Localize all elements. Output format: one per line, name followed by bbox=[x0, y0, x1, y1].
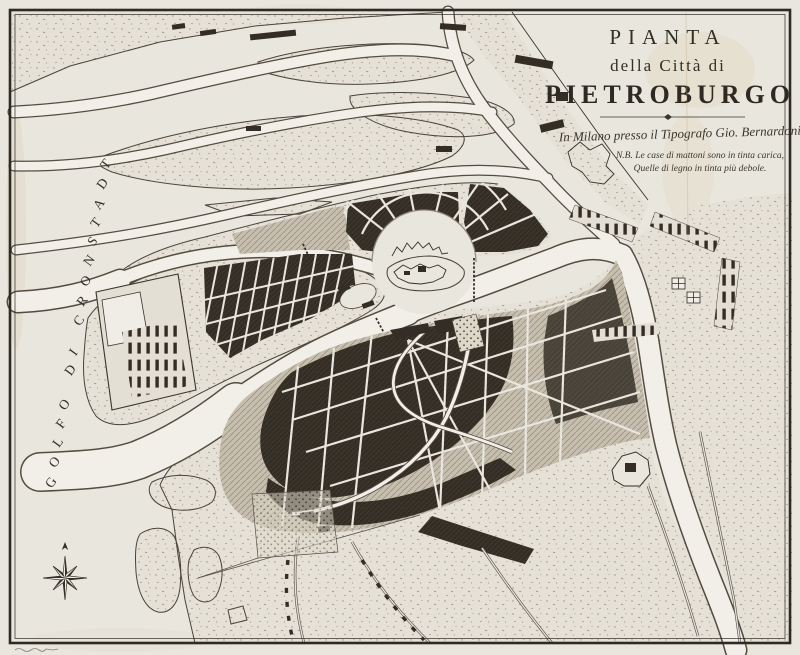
legend-note-line2: Quelle di legno in tinta più debole. bbox=[634, 164, 767, 174]
map-canvas: PIANTA della Città di PIETROBURGO In Mil… bbox=[0, 0, 800, 655]
galley-harbor bbox=[96, 274, 196, 410]
map-title-line3: PIETROBURGO bbox=[545, 80, 795, 109]
map-title-line1: PIANTA bbox=[609, 25, 726, 49]
map-title-line2: della Città di bbox=[610, 56, 726, 75]
legend-note-line1: N.B. Le case di mattoni sono in tinta ca… bbox=[615, 151, 784, 161]
ekateringof-park bbox=[252, 490, 338, 558]
engraved-map-page: PIANTA della Città di PIETROBURGO In Mil… bbox=[0, 0, 800, 655]
